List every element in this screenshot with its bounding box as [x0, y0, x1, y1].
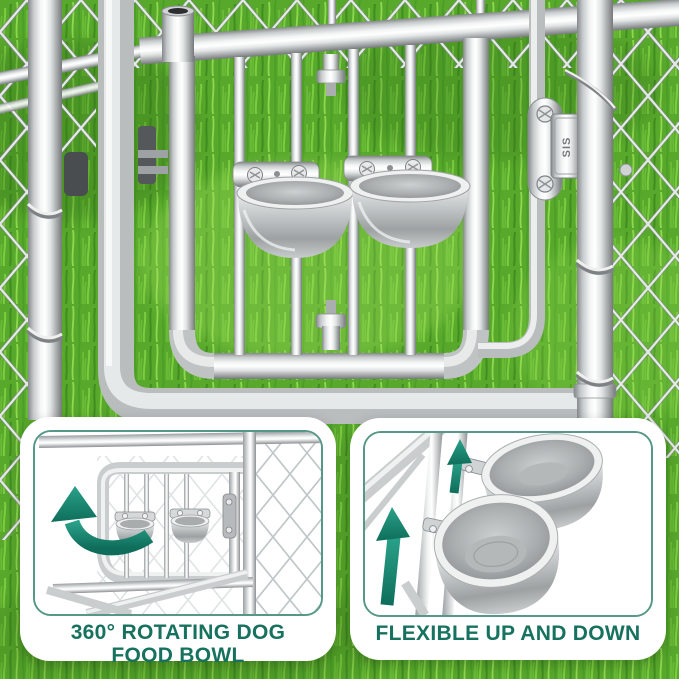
pole-clamp [64, 152, 88, 196]
latch-label: SIS [561, 137, 573, 158]
callout-card-rotating-bowl: 360° ROTATING DOG FOOD BOWL [20, 417, 336, 661]
fence-pole-left [28, 0, 62, 420]
mini-bowl-right [170, 509, 210, 543]
frame-post-top [162, 6, 194, 62]
caption-line-1: 360° ROTATING DOG [71, 621, 286, 644]
caption-line-2: FOOD BOWL [71, 644, 286, 667]
flexible-bowls-illustration [365, 433, 651, 615]
caption-rotating-bowl: 360° ROTATING DOG FOOD BOWL [71, 621, 286, 667]
rotating-bowl-illustration [35, 432, 321, 614]
caption-line: FLEXIBLE UP AND DOWN [375, 622, 640, 645]
callout-card-flexible: FLEXIBLE UP AND DOWN [350, 418, 666, 660]
chain-link-right [606, 0, 679, 458]
product-image: SIS [0, 0, 679, 679]
caption-flexible: FLEXIBLE UP AND DOWN [375, 622, 640, 645]
callout-photo-rotating-bowl [33, 430, 323, 616]
callout-photo-flexible [363, 431, 653, 617]
fence-knob [620, 164, 632, 176]
